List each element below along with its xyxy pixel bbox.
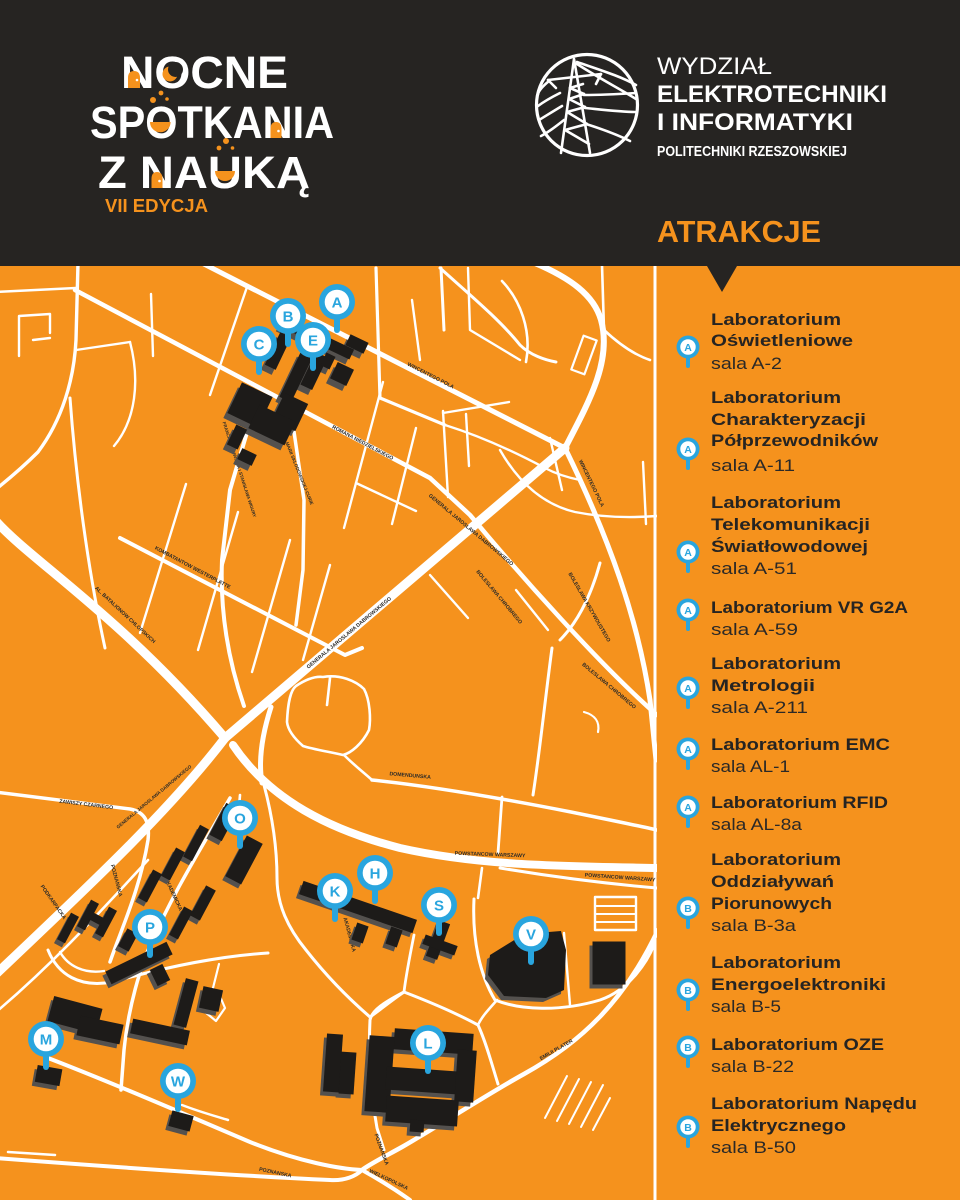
svg-text:sala A-11: sala A-11 <box>711 456 795 475</box>
svg-text:A: A <box>684 683 692 695</box>
svg-text:H: H <box>370 866 381 883</box>
svg-text:A: A <box>684 605 692 617</box>
svg-text:Laboratorium EMC: Laboratorium EMC <box>711 735 890 754</box>
svg-text:O: O <box>234 811 246 828</box>
svg-text:Laboratorium: Laboratorium <box>711 310 841 329</box>
svg-text:POLITECHNIKI RZESZOWSKIEJ: POLITECHNIKI RZESZOWSKIEJ <box>657 144 847 160</box>
svg-text:L: L <box>423 1036 432 1053</box>
svg-text:B: B <box>684 1122 692 1134</box>
svg-text:Laboratorium Napędu: Laboratorium Napędu <box>711 1094 917 1113</box>
svg-text:A: A <box>332 295 343 312</box>
svg-text:A: A <box>684 547 692 559</box>
svg-text:Oświetleniowe: Oświetleniowe <box>711 331 853 350</box>
svg-text:sala B-5: sala B-5 <box>711 997 781 1016</box>
svg-text:C: C <box>254 337 265 354</box>
svg-text:Światłowodowej: Światłowodowej <box>711 537 868 556</box>
svg-text:W: W <box>171 1074 186 1091</box>
svg-text:Laboratorium: Laboratorium <box>711 388 841 407</box>
svg-text:sala A-2: sala A-2 <box>711 354 782 373</box>
svg-text:I INFORMATYKI: I INFORMATYKI <box>657 109 853 136</box>
svg-text:B: B <box>283 309 294 326</box>
svg-text:A: A <box>684 802 692 814</box>
svg-text:A: A <box>684 444 692 456</box>
svg-text:Półprzewodników: Półprzewodników <box>711 431 879 450</box>
svg-text:sala AL-8a: sala AL-8a <box>711 815 803 834</box>
svg-text:sala B-50: sala B-50 <box>711 1138 796 1157</box>
svg-text:Z NAUKĄ: Z NAUKĄ <box>98 147 310 198</box>
svg-text:V: V <box>526 927 536 944</box>
svg-text:Laboratorium OZE: Laboratorium OZE <box>711 1035 884 1054</box>
svg-text:SPOTKANIA: SPOTKANIA <box>90 97 334 148</box>
svg-text:Laboratorium: Laboratorium <box>711 493 841 512</box>
svg-text:S: S <box>434 898 444 915</box>
svg-text:A: A <box>684 342 692 354</box>
svg-text:E: E <box>308 333 318 350</box>
svg-text:Elektrycznego: Elektrycznego <box>711 1116 846 1135</box>
svg-text:A: A <box>684 744 692 756</box>
svg-text:B: B <box>684 1042 692 1054</box>
svg-text:Laboratorium: Laboratorium <box>711 953 841 972</box>
svg-text:B: B <box>684 985 692 997</box>
svg-text:Charakteryzacji: Charakteryzacji <box>711 410 866 429</box>
svg-text:sala A-51: sala A-51 <box>711 559 797 578</box>
svg-text:B: B <box>684 903 692 915</box>
svg-text:K: K <box>330 884 341 901</box>
svg-text:sala A-59: sala A-59 <box>711 620 798 639</box>
svg-text:sala AL-1: sala AL-1 <box>711 757 790 776</box>
svg-text:Oddziaływań: Oddziaływań <box>711 872 834 891</box>
svg-text:sala B-22: sala B-22 <box>711 1057 794 1076</box>
svg-text:WYDZIAŁ: WYDZIAŁ <box>657 53 772 80</box>
svg-text:Metrologii: Metrologii <box>711 676 815 695</box>
svg-text:Piorunowych: Piorunowych <box>711 894 832 913</box>
svg-text:Energoelektroniki: Energoelektroniki <box>711 975 886 994</box>
svg-text:ATRAKCJE: ATRAKCJE <box>657 214 821 249</box>
svg-text:ELEKTROTECHNIKI: ELEKTROTECHNIKI <box>657 81 887 108</box>
svg-text:M: M <box>40 1032 53 1049</box>
svg-text:sala A-211: sala A-211 <box>711 698 808 717</box>
svg-text:Laboratorium: Laboratorium <box>711 654 841 673</box>
svg-text:Laboratorium RFID: Laboratorium RFID <box>711 793 888 812</box>
svg-text:Laboratorium: Laboratorium <box>711 850 841 869</box>
svg-text:VII EDYCJA: VII EDYCJA <box>105 196 208 216</box>
svg-text:sala B-3a: sala B-3a <box>711 916 797 935</box>
svg-text:Laboratorium VR G2A: Laboratorium VR G2A <box>711 598 908 617</box>
svg-text:P: P <box>145 920 155 937</box>
svg-text:Telekomunikacji: Telekomunikacji <box>711 515 870 534</box>
svg-text:NOCNE: NOCNE <box>121 47 288 98</box>
